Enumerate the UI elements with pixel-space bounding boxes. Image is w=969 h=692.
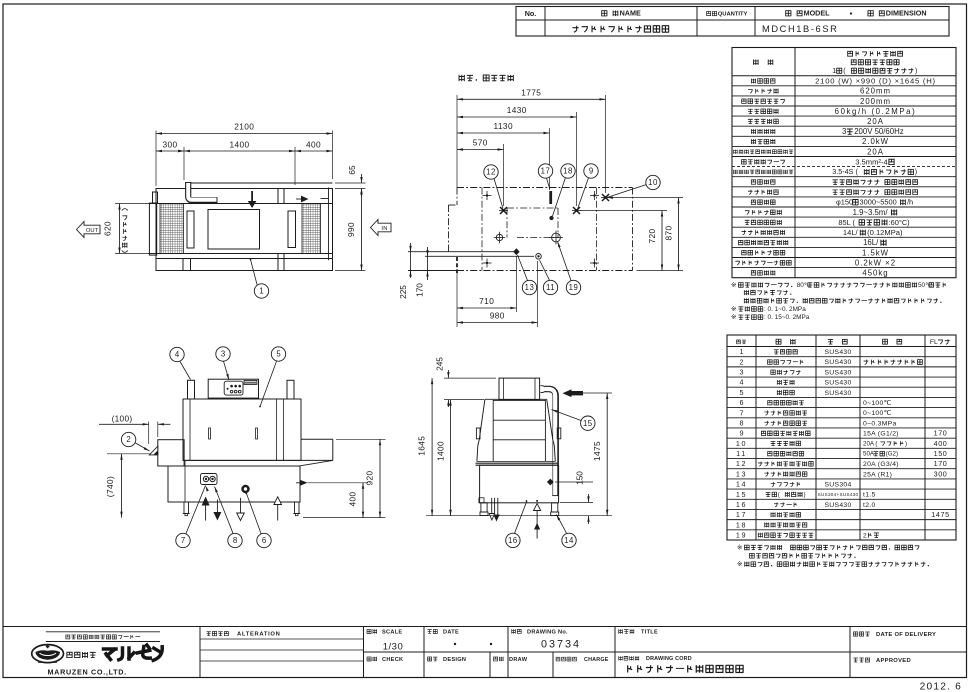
svg-text:14L/: 14L/ bbox=[843, 228, 859, 237]
svg-text:1645: 1645 bbox=[417, 436, 427, 456]
svg-text:t1.5: t1.5 bbox=[863, 492, 876, 499]
svg-text:FL: FL bbox=[930, 339, 938, 346]
svg-text:9: 9 bbox=[740, 429, 744, 438]
svg-text:4: 4 bbox=[740, 378, 744, 387]
svg-text:1430: 1430 bbox=[507, 105, 527, 115]
svg-text:DRAWING CORD: DRAWING CORD bbox=[646, 656, 692, 662]
svg-text:(100): (100) bbox=[112, 413, 133, 423]
svg-text:3.5mm²-4: 3.5mm²-4 bbox=[855, 157, 888, 166]
svg-text:1400: 1400 bbox=[229, 139, 249, 149]
svg-text:990: 990 bbox=[346, 222, 356, 237]
svg-text:※: ※ bbox=[737, 545, 742, 552]
svg-text:60kg/h (0.2MPa): 60kg/h (0.2MPa) bbox=[835, 107, 917, 116]
svg-text:11: 11 bbox=[736, 449, 747, 458]
svg-text:5: 5 bbox=[276, 350, 281, 359]
svg-text:φ150: φ150 bbox=[836, 198, 853, 207]
svg-text:20A: 20A bbox=[867, 117, 884, 126]
svg-text:/h: /h bbox=[907, 198, 913, 207]
svg-text:): ) bbox=[905, 441, 907, 448]
svg-text:NAME: NAME bbox=[620, 9, 641, 18]
svg-text:170: 170 bbox=[415, 283, 425, 297]
svg-text:CHECK: CHECK bbox=[382, 657, 403, 663]
svg-text:20A: 20A bbox=[867, 147, 884, 156]
svg-text:12: 12 bbox=[736, 459, 747, 468]
svg-text:SUS430: SUS430 bbox=[824, 380, 851, 387]
svg-text:11: 11 bbox=[546, 283, 555, 292]
svg-text:14: 14 bbox=[564, 536, 574, 545]
svg-text:SUS304: SUS304 bbox=[824, 481, 851, 488]
svg-text:18: 18 bbox=[736, 520, 747, 529]
svg-text:DIMENSION: DIMENSION bbox=[886, 9, 927, 18]
svg-text:50A: 50A bbox=[863, 451, 875, 458]
svg-text:14: 14 bbox=[736, 480, 747, 489]
svg-text:7: 7 bbox=[181, 536, 185, 545]
svg-text:1/30: 1/30 bbox=[383, 642, 404, 653]
svg-text:(0.12MPa): (0.12MPa) bbox=[867, 228, 903, 237]
svg-text:65: 65 bbox=[347, 165, 357, 175]
svg-text:710: 710 bbox=[479, 296, 494, 306]
svg-text:170: 170 bbox=[934, 429, 948, 438]
svg-text:1.9~3.5m/: 1.9~3.5m/ bbox=[853, 208, 889, 217]
svg-text:1475: 1475 bbox=[592, 441, 602, 461]
svg-text:SUS430: SUS430 bbox=[824, 349, 851, 356]
svg-text:20A (G3/4): 20A (G3/4) bbox=[863, 461, 899, 468]
svg-text:SUS430: SUS430 bbox=[824, 502, 851, 509]
svg-text:13: 13 bbox=[525, 283, 535, 292]
svg-text:SUS430: SUS430 bbox=[824, 369, 851, 376]
svg-text:7: 7 bbox=[740, 408, 744, 417]
svg-text:18: 18 bbox=[563, 167, 573, 176]
svg-text:0~100℃: 0~100℃ bbox=[863, 400, 892, 407]
svg-text:19: 19 bbox=[736, 531, 747, 540]
svg-text:3: 3 bbox=[740, 368, 744, 377]
svg-text:t2.0: t2.0 bbox=[863, 502, 876, 509]
svg-text:720: 720 bbox=[647, 228, 657, 243]
svg-text:ALTERATION: ALTERATION bbox=[237, 632, 281, 638]
svg-text:※: ※ bbox=[731, 306, 736, 313]
svg-text:85L (: 85L ( bbox=[838, 218, 855, 227]
svg-text:SCALE: SCALE bbox=[382, 629, 402, 635]
svg-text:16: 16 bbox=[508, 536, 518, 545]
svg-text:5: 5 bbox=[740, 388, 744, 397]
svg-text:): ) bbox=[915, 167, 917, 176]
svg-text:3000~5500: 3000~5500 bbox=[860, 198, 897, 207]
svg-text:(740): (740) bbox=[105, 476, 115, 497]
svg-text:1400: 1400 bbox=[436, 441, 446, 461]
svg-text:3: 3 bbox=[842, 127, 846, 136]
svg-text:170: 170 bbox=[934, 459, 948, 468]
svg-text:SUS430: SUS430 bbox=[824, 359, 851, 366]
svg-text:16: 16 bbox=[736, 500, 747, 509]
svg-text:1130: 1130 bbox=[494, 121, 513, 131]
svg-text:16L/: 16L/ bbox=[863, 238, 879, 247]
svg-text:15: 15 bbox=[736, 490, 747, 499]
svg-text:OUT: OUT bbox=[86, 228, 99, 234]
svg-text:2100: 2100 bbox=[234, 122, 254, 132]
svg-text:25A (R1): 25A (R1) bbox=[863, 471, 892, 478]
svg-text:920: 920 bbox=[365, 470, 375, 485]
svg-text::60°C): :60°C) bbox=[889, 218, 910, 227]
svg-text:570: 570 bbox=[473, 138, 488, 148]
svg-text:SUS430: SUS430 bbox=[824, 390, 851, 397]
svg-text:300: 300 bbox=[162, 139, 177, 149]
svg-text:※: ※ bbox=[737, 561, 742, 568]
svg-text:: 0. 1~0. 2MPa: : 0. 1~0. 2MPa bbox=[764, 306, 806, 313]
svg-text:MODEL: MODEL bbox=[804, 9, 831, 18]
svg-text:1775: 1775 bbox=[521, 87, 541, 97]
svg-text:17: 17 bbox=[541, 167, 551, 176]
svg-text:No.: No. bbox=[525, 9, 537, 18]
svg-text:980: 980 bbox=[490, 311, 505, 321]
svg-text:※: ※ bbox=[731, 282, 736, 289]
svg-text:150: 150 bbox=[934, 449, 948, 458]
svg-text:450kg: 450kg bbox=[862, 268, 888, 277]
svg-text:20A (: 20A ( bbox=[863, 441, 878, 448]
svg-text:2: 2 bbox=[740, 357, 744, 366]
svg-text:0.2kW ×2: 0.2kW ×2 bbox=[855, 258, 896, 267]
svg-text:200V 50/60Hz: 200V 50/60Hz bbox=[854, 127, 904, 136]
svg-text:1: 1 bbox=[832, 68, 836, 75]
svg-text:400: 400 bbox=[934, 439, 948, 448]
svg-text:): ) bbox=[804, 491, 806, 498]
svg-text:1475: 1475 bbox=[931, 510, 949, 519]
svg-text:SUS304+SUS430: SUS304+SUS430 bbox=[818, 492, 859, 497]
svg-text:DATE: DATE bbox=[443, 629, 459, 635]
svg-text:870: 870 bbox=[664, 225, 674, 240]
svg-text:2100 (W) ×990 (D) ×1645 (H): 2100 (W) ×990 (D) ×1645 (H) bbox=[815, 77, 936, 86]
svg-text:9: 9 bbox=[589, 167, 593, 176]
svg-text:): ) bbox=[915, 68, 917, 75]
svg-text:03734: 03734 bbox=[541, 639, 581, 651]
svg-text:10: 10 bbox=[648, 178, 658, 187]
svg-text:3.5-4S (: 3.5-4S ( bbox=[832, 167, 858, 176]
svg-text:1: 1 bbox=[259, 287, 263, 296]
svg-text:8: 8 bbox=[740, 418, 744, 427]
svg-text:6: 6 bbox=[740, 398, 744, 407]
svg-text:CHARGE: CHARGE bbox=[584, 657, 609, 663]
svg-text:245: 245 bbox=[435, 357, 445, 371]
svg-text:17: 17 bbox=[736, 510, 747, 519]
svg-text:: 0. 15~0. 2MPa: : 0. 15~0. 2MPa bbox=[764, 314, 810, 321]
svg-text:15: 15 bbox=[583, 419, 593, 428]
svg-text:0~0.3MPa: 0~0.3MPa bbox=[863, 420, 897, 427]
svg-text:4: 4 bbox=[175, 350, 180, 359]
svg-text:19: 19 bbox=[569, 283, 579, 292]
svg-text:3: 3 bbox=[221, 350, 225, 359]
svg-text:2012. 6: 2012. 6 bbox=[920, 682, 962, 692]
svg-text:200mm: 200mm bbox=[860, 97, 891, 106]
svg-text:IN: IN bbox=[381, 226, 387, 232]
svg-text:0~100℃: 0~100℃ bbox=[863, 410, 892, 417]
svg-text:2: 2 bbox=[863, 532, 867, 539]
svg-text:DRAW: DRAW bbox=[509, 657, 528, 663]
svg-text:2: 2 bbox=[126, 435, 130, 444]
svg-text:8: 8 bbox=[233, 536, 237, 545]
svg-text:12: 12 bbox=[486, 168, 496, 177]
svg-text:APPROVED: APPROVED bbox=[876, 658, 911, 664]
svg-text:MDCH1B-6SR: MDCH1B-6SR bbox=[762, 24, 838, 34]
svg-text:300: 300 bbox=[934, 469, 948, 478]
svg-text:150: 150 bbox=[575, 471, 585, 485]
svg-text:2.0kW: 2.0kW bbox=[862, 137, 889, 146]
svg-text:10: 10 bbox=[736, 439, 747, 448]
svg-text:620mm: 620mm bbox=[860, 87, 891, 96]
svg-text:TITLE: TITLE bbox=[641, 629, 658, 635]
svg-text:400: 400 bbox=[348, 491, 358, 506]
svg-text:DATE OF DELIVERY: DATE OF DELIVERY bbox=[876, 632, 936, 638]
svg-text:1.5kW: 1.5kW bbox=[862, 248, 889, 257]
svg-text:DESIGN: DESIGN bbox=[443, 657, 466, 663]
svg-text:620: 620 bbox=[103, 221, 113, 236]
svg-text:13: 13 bbox=[736, 469, 747, 478]
svg-text:(G2): (G2) bbox=[886, 451, 898, 458]
svg-text:MARUZEN CO.,LTD.: MARUZEN CO.,LTD. bbox=[48, 668, 127, 677]
svg-text:6: 6 bbox=[262, 536, 266, 545]
svg-text:QUANTITY: QUANTITY bbox=[718, 11, 748, 17]
svg-text:15A (G1/2): 15A (G1/2) bbox=[863, 431, 899, 438]
svg-text:400: 400 bbox=[306, 139, 321, 149]
svg-text:DRAWING No.: DRAWING No. bbox=[527, 629, 568, 635]
svg-text:※: ※ bbox=[731, 314, 736, 321]
svg-text:225: 225 bbox=[398, 285, 408, 299]
svg-text:1: 1 bbox=[740, 347, 744, 356]
